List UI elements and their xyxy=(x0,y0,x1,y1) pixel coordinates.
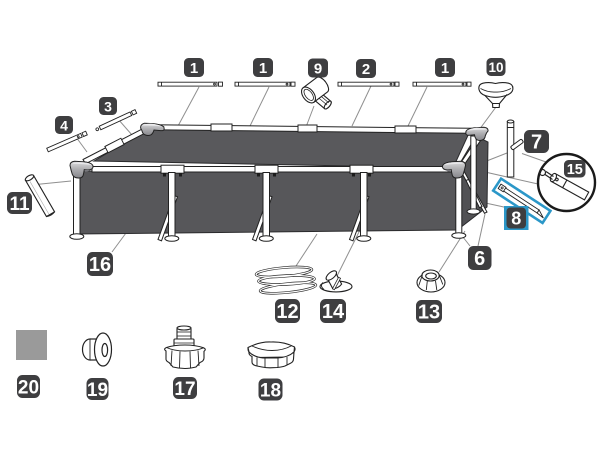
svg-text:9: 9 xyxy=(314,60,322,77)
svg-text:1: 1 xyxy=(441,60,449,77)
svg-text:7: 7 xyxy=(531,132,542,154)
svg-text:12: 12 xyxy=(276,301,298,323)
svg-text:13: 13 xyxy=(418,302,440,324)
svg-text:10: 10 xyxy=(488,60,503,75)
svg-text:3: 3 xyxy=(104,98,112,114)
svg-text:15: 15 xyxy=(567,162,583,178)
svg-text:1: 1 xyxy=(190,60,198,77)
svg-text:2: 2 xyxy=(362,61,370,78)
svg-text:8: 8 xyxy=(511,209,521,229)
svg-text:6: 6 xyxy=(474,248,485,270)
svg-text:1: 1 xyxy=(259,60,267,77)
svg-text:18: 18 xyxy=(260,380,281,401)
svg-text:17: 17 xyxy=(174,379,195,400)
svg-text:16: 16 xyxy=(89,254,111,276)
svg-text:14: 14 xyxy=(322,301,345,323)
svg-text:20: 20 xyxy=(18,377,39,398)
svg-text:4: 4 xyxy=(60,117,68,133)
svg-text:11: 11 xyxy=(9,194,30,215)
svg-text:19: 19 xyxy=(87,380,108,401)
